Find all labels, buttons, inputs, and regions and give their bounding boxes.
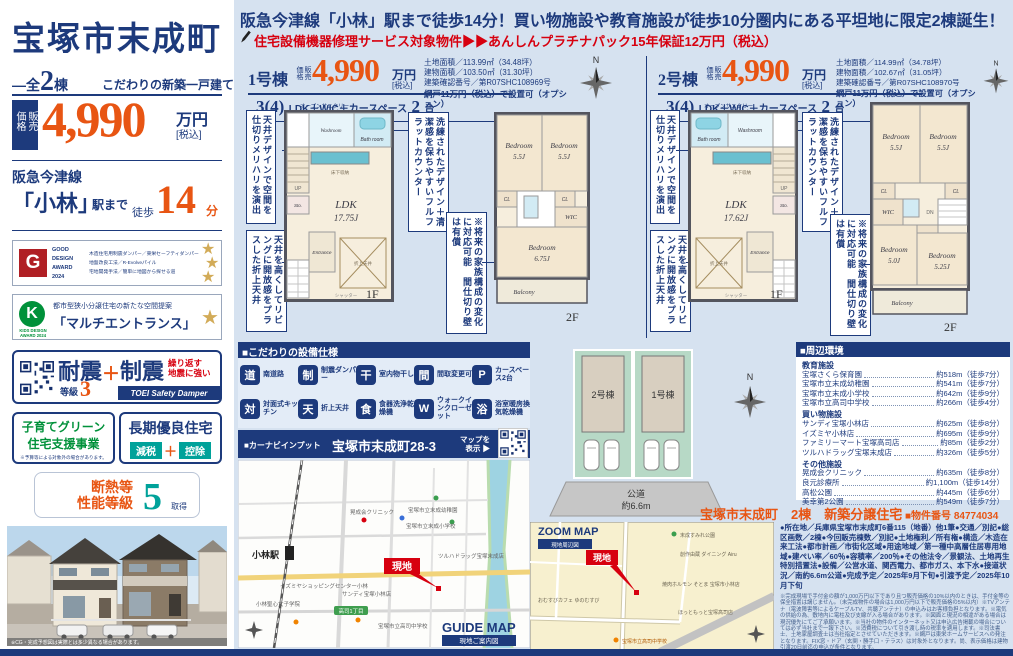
grade-label: 等級 <box>60 385 78 398</box>
kids-design-name: 「マルチエントランス」 <box>53 313 196 332</box>
damper-icon: 制 <box>298 365 318 385</box>
carnav-bar: ■カーナビインプット 宝塚市末成町28-3 マップを 表示 ▶ <box>238 430 530 458</box>
units-dash: — <box>12 77 26 93</box>
svg-text:Balcony: Balcony <box>513 289 534 296</box>
seishin-label: 制震 <box>120 354 164 386</box>
compass-icon: N <box>578 54 614 102</box>
qr-code <box>498 428 528 458</box>
equipment-item: 浴浴室暖房換気乾燥機 <box>472 396 530 422</box>
rail-line-name: 阪急今津線 <box>12 167 82 187</box>
exterior-photo: ※CG・完成予想図は実際とは多少異なる場合があります。 <box>7 526 227 646</box>
svg-text:5.5J: 5.5J <box>513 153 526 161</box>
unit1-price: 4,990 <box>312 52 379 89</box>
svg-text:WIC: WIC <box>882 209 895 216</box>
equipment-item: Wウォークインクローゼット <box>414 396 472 422</box>
indoor-drying-icon: 干 <box>356 365 376 385</box>
svg-text:Sto.: Sto. <box>294 203 302 208</box>
show-map-button[interactable]: マップを 表示 ▶ <box>460 435 490 453</box>
unit1-1f-label: 1F <box>366 287 379 302</box>
subline: 住宅設備機器修理サービス対象物件▶▶あんしんプラチナパック15年保証12万円（税… <box>254 31 777 50</box>
sanitary-label: オープンサニタリー <box>300 102 349 110</box>
star-icon: ★ <box>201 305 219 330</box>
property-details: ●所在地／兵庫県宝塚市末成町6番115（地番）他1筆●交通／別記●総区画数／2棟… <box>780 523 1010 590</box>
env-item: 宝塚市立高司中学校約266m（徒歩4分） <box>802 399 1004 409</box>
kids-design-desc: 都市型狭小分譲住宅の新たな空間提案 <box>53 301 172 311</box>
plus-sign: ＋ <box>102 360 120 386</box>
env-item: ツルハドラッグ宝塚末成店約326m（徒歩5分） <box>802 448 1004 458</box>
svg-text:5.5J: 5.5J <box>890 144 903 152</box>
map-label: 晃成会クリニック <box>350 508 394 516</box>
svg-text:N: N <box>993 60 998 67</box>
map-label: 末成すみれ公園 <box>680 532 715 539</box>
page-title: 宝塚市末成町 <box>12 12 222 60</box>
zoom-map: 末成すみれ公園 創作由蔵 ダイニング Airu 焼肉ホルモン そとま 宝塚市小林… <box>530 522 774 652</box>
grade-number: 3 <box>80 376 91 402</box>
carnav-address: 宝塚市末成町28-3 <box>332 436 436 455</box>
map-label: サンディ宝塚小林店 <box>342 590 392 598</box>
map-label: 宝塚市立末成幼稚園 <box>408 506 458 514</box>
station-suffix: 駅まで <box>92 196 128 213</box>
unit2-name: 2号棟 <box>658 66 698 90</box>
pen-icon <box>238 29 254 46</box>
svg-text:CL: CL <box>953 189 960 195</box>
map-label: 焼肉ホルモン そとま 宝塚市小林店 <box>662 581 740 588</box>
zoom-map-title: ZOOM MAP <box>538 526 599 538</box>
equipment-item: 制制震ダンパー <box>298 362 356 388</box>
unit1-option: 網戸11万円（税込）で設置可（オプション） <box>424 89 574 109</box>
walk-label: 徒歩 <box>132 204 154 220</box>
svg-text:CL: CL <box>562 197 569 203</box>
bath-dryer-icon: 浴 <box>472 399 492 419</box>
walk-in-closet-icon: W <box>414 399 434 419</box>
road-badge: 高司1丁目 <box>338 607 363 615</box>
callout-raised-ceiling: 天井を高くしてリビングに開放感をプラスした折上天井 <box>650 230 691 332</box>
kosodate-badge: 子育てグリーン 住宅支援事業 ※予算等による対象外の場合があります。 <box>12 412 115 464</box>
good-design-label: GOOD DESIGN AWARD 2024 <box>52 246 73 282</box>
zoom-map-tag: 現地周辺図 <box>551 541 579 549</box>
callout-partition-wall: ※将来の家族構成の変化に対応可能 間仕切り壁は有償 <box>830 214 871 336</box>
environment-header: ■周辺環境 <box>796 342 1010 357</box>
damper-brand: TOEI Safety Damper <box>118 386 220 400</box>
equipment-header: ■こだわりの設備仕様 <box>238 342 530 358</box>
equipment-item: 食食器洗浄乾燥機 <box>356 396 414 422</box>
svg-text:Washroom: Washroom <box>320 129 341 134</box>
svg-text:Bath room: Bath room <box>360 137 383 143</box>
compass-icon: N <box>982 56 1010 98</box>
good-design-award-badge: G GOOD DESIGN AWARD 2024 木造住宅用制震ダンパー／東栄セ… <box>12 240 222 286</box>
svg-text:Bedroom: Bedroom <box>550 141 578 150</box>
guide-map: 小林駅 宝塚市立末成幼稚園 宝塚市立末成小学校 晃成会クリニック サンディ宝塚小… <box>238 460 530 648</box>
svg-text:床下収納: 床下収納 <box>733 169 751 176</box>
svg-text:LDK: LDK <box>334 199 357 211</box>
star-icon: ★ <box>201 267 215 287</box>
svg-text:CL: CL <box>881 189 888 195</box>
svg-text:5.5J: 5.5J <box>937 144 950 152</box>
unit2-floorplan-1f: Bath room Washroom UP 床下収納 Sto. LDK 17.6… <box>688 110 798 302</box>
station-name: 「小林」 <box>12 186 100 218</box>
svg-text:17.75J: 17.75J <box>334 213 359 223</box>
svg-text:UP: UP <box>295 186 303 192</box>
svg-text:Balcony: Balcony <box>891 300 912 307</box>
station-label: 小林駅 <box>251 549 280 560</box>
equipment-item: Pカースペース2台 <box>472 362 530 388</box>
map-label: ツルハドラッグ宝塚末成店 <box>438 552 505 560</box>
price-tag: 販売価格 <box>12 100 38 150</box>
svg-text:5.0J: 5.0J <box>888 257 901 265</box>
road-label: 公道 <box>627 488 645 499</box>
site-flag: 現地 <box>593 552 611 563</box>
svg-text:Bedroom: Bedroom <box>528 243 556 252</box>
svg-text:Bedroom: Bedroom <box>929 132 957 141</box>
chouki-badge: 長期優良住宅 減税 ＋ 控除 <box>119 412 222 464</box>
guide-map-subtitle: 現地ご案内図 <box>460 636 499 645</box>
unit2-1f-label: 1F <box>770 287 783 302</box>
carnav-label: ■カーナビインプット <box>244 440 321 451</box>
unit1-floorplan-1f: Washroom Bath room UP 床下収納 Sto. LDK 17.7… <box>284 110 394 302</box>
svg-text:N: N <box>593 55 600 65</box>
dishwasher-icon: 食 <box>356 399 376 419</box>
svg-text:LDK: LDK <box>724 199 747 211</box>
equipment-item: 道南道路 <box>240 362 298 388</box>
unit2-2f-label: 2F <box>944 320 957 335</box>
seismic-badge: 耐震 等級 3 ＋ 制震 繰り返す 地震に強い TOEI Safety Damp… <box>12 350 222 404</box>
callout-flat-counter: 洗練されたデザイン＋清潔感を保ちやすいフルフラットカウンター <box>408 112 449 232</box>
svg-text:Entrance: Entrance <box>312 250 332 256</box>
good-design-logo-icon: G <box>19 249 47 277</box>
coffered-ceiling-icon: 天 <box>298 399 318 419</box>
equipment-item: 対対面式キッチン <box>240 396 298 422</box>
unit2-floorplan-2f: Bedroom 5.5J Bedroom 5.5J CL CL WIC DN B… <box>870 102 970 318</box>
price-value: 4,990 <box>42 90 145 148</box>
map-label: 創作由蔵 ダイニング Airu <box>680 551 737 558</box>
parking-icon: P <box>472 365 492 385</box>
environment-panel: ■周辺環境 教育施設 宝塚さくら保育園約518m（徒歩7分） 宝塚市立末成幼稚園… <box>796 342 1010 500</box>
sidebar: 宝塚市末成町 —全2棟 こだわりの新築一戸建て 販売価格 4,990 万円 [税… <box>0 0 234 649</box>
svg-text:シャッター: シャッター <box>725 292 748 299</box>
svg-text:CL: CL <box>504 197 511 203</box>
bottom-bar <box>0 649 1013 656</box>
svg-text:17.62J: 17.62J <box>724 213 749 223</box>
svg-text:5.5J: 5.5J <box>558 153 571 161</box>
svg-text:Washroom: Washroom <box>738 128 762 134</box>
insulation-grade: 5 <box>143 475 162 519</box>
unit1-specs: 土地面積／113.99㎡（34.48坪） 建物面積／103.50㎡（31.30坪… <box>424 58 574 109</box>
svg-text:6.75J: 6.75J <box>534 255 550 263</box>
callout-ceiling-design: 天井デザインで空間を仕切りメリハリを演出 <box>246 110 276 224</box>
svg-text:約6.6m: 約6.6m <box>621 500 650 511</box>
map-label: イズミヤショッピングセンター小林 <box>280 582 368 590</box>
map-label: 宝塚市立高司中学校 <box>622 638 667 645</box>
kosodate-note: ※予算等による対象外の場合があります。 <box>14 455 113 461</box>
lot2-label: 2号棟 <box>591 389 614 400</box>
equipment-item: 干室内物干し <box>356 362 414 388</box>
walk-unit: 分 <box>206 202 218 219</box>
callout-raised-ceiling: 天井を高くしてリビングに開放感をプラスした折上天井 <box>246 230 287 332</box>
svg-text:折上天井: 折上天井 <box>354 260 372 267</box>
unit1-name: 1号棟 <box>248 66 288 90</box>
equipment-item: 天折上天井 <box>298 396 356 422</box>
unit2-price-tag: 販売価格 <box>706 62 720 88</box>
site-flag: 現地 <box>392 560 412 573</box>
map-label: 宝塚市立末成小学校 <box>406 522 456 530</box>
property-fine-print: ※完成現場で手付金の額が1,000万円以下であり且つ販売価格の10%以内のときは… <box>780 594 1010 652</box>
unit2-price: 4,990 <box>722 52 789 89</box>
compass-icon: N <box>734 372 766 418</box>
equipment-item: 間間取変更可 <box>414 362 472 388</box>
plus-sign: ＋ <box>164 441 177 460</box>
counter-kitchen-icon: 対 <box>240 399 260 419</box>
svg-text:Bedroom: Bedroom <box>882 132 910 141</box>
map-label: 宝塚市立高司中学校 <box>378 622 428 630</box>
svg-text:床下収納: 床下収納 <box>331 169 349 176</box>
svg-text:Bedroom: Bedroom <box>880 245 908 254</box>
unit-divider <box>646 56 647 338</box>
divider <box>12 230 222 231</box>
svg-text:折上天井: 折上天井 <box>710 260 728 267</box>
unit1-floorplan-2f: Bedroom 5.5J Bedroom 5.5J CL CL WIC Bedr… <box>494 112 590 308</box>
photo-caption: ※CG・完成予想図は実際とは多少異なる場合があります。 <box>11 639 142 646</box>
sanitary-label: オープンサニタリー <box>704 102 753 110</box>
svg-text:N: N <box>747 372 754 382</box>
seismic-note: 繰り返す 地震に強い <box>168 358 211 378</box>
svg-text:WIC: WIC <box>565 214 578 221</box>
walk-minutes: 14 <box>156 176 196 223</box>
divider <box>12 160 222 161</box>
svg-text:Sto.: Sto. <box>780 203 788 208</box>
kids-design-logo-icon: K <box>19 301 45 327</box>
svg-text:5.25J: 5.25J <box>934 263 950 271</box>
svg-text:Bath room: Bath room <box>697 137 720 143</box>
svg-text:Bedroom: Bedroom <box>505 141 533 150</box>
guide-map-title: GUIDE MAP <box>442 620 516 635</box>
headline: 阪急今津線「小林」駅まで徒歩14分！買い物施設や教育施設が徒歩10分圏内にある平… <box>240 7 1005 31</box>
property-number: ■物件番号 84774034 <box>905 507 998 522</box>
kids-design-award-badge: K KIDS DESIGN AWARD 2024 都市型狭小分譲住宅の新たな空間… <box>12 294 222 340</box>
south-road-icon: 道 <box>240 365 260 385</box>
callout-ceiling-design: 天井デザインで空間を仕切りメリハリを演出 <box>650 110 680 224</box>
svg-text:UP: UP <box>781 186 789 192</box>
qr-code <box>20 361 54 395</box>
property-title: 宝塚市末成町 2棟 新築分譲住宅 <box>700 504 902 523</box>
callout-partition-wall: ※将来の家族構成の変化に対応可能 間仕切り壁は有償 <box>446 212 487 334</box>
svg-text:Entrance: Entrance <box>750 250 770 256</box>
map-label: おむすびカフェ ゆのむすび <box>538 597 599 604</box>
svg-text:シャッター: シャッター <box>335 292 358 299</box>
good-design-desc: 木造住宅用制震ダンパー／東栄セーフティダンパー 地盤改良工法／R-Evolveパ… <box>89 250 199 277</box>
map-label: 小林聖心女子学院 <box>256 600 301 608</box>
price-tax: [税込] <box>176 126 202 141</box>
layout-change-icon: 間 <box>414 365 434 385</box>
unit1-price-tag: 販売価格 <box>296 62 310 88</box>
map-label: ほっともっと宝塚高司店 <box>678 609 733 616</box>
real-estate-flyer: { "meta": {"compass_n": "N"}, "sidebar":… <box>0 0 1013 656</box>
insulation-badge: 断熱等 性能等級 5 取得 <box>34 472 200 518</box>
koujo-tag: 控除 <box>179 442 211 459</box>
unit1-2f-label: 2F <box>566 310 579 325</box>
kids-design-label: KIDS DESIGN AWARD 2024 <box>16 328 50 338</box>
site-plan: 2号棟 1号棟 公道 約6.6m N <box>536 342 790 520</box>
genzei-tag: 減税 <box>130 442 162 459</box>
lot1-label: 1号棟 <box>651 389 674 400</box>
svg-text:DN: DN <box>926 210 934 216</box>
svg-text:Bedroom: Bedroom <box>928 251 956 260</box>
